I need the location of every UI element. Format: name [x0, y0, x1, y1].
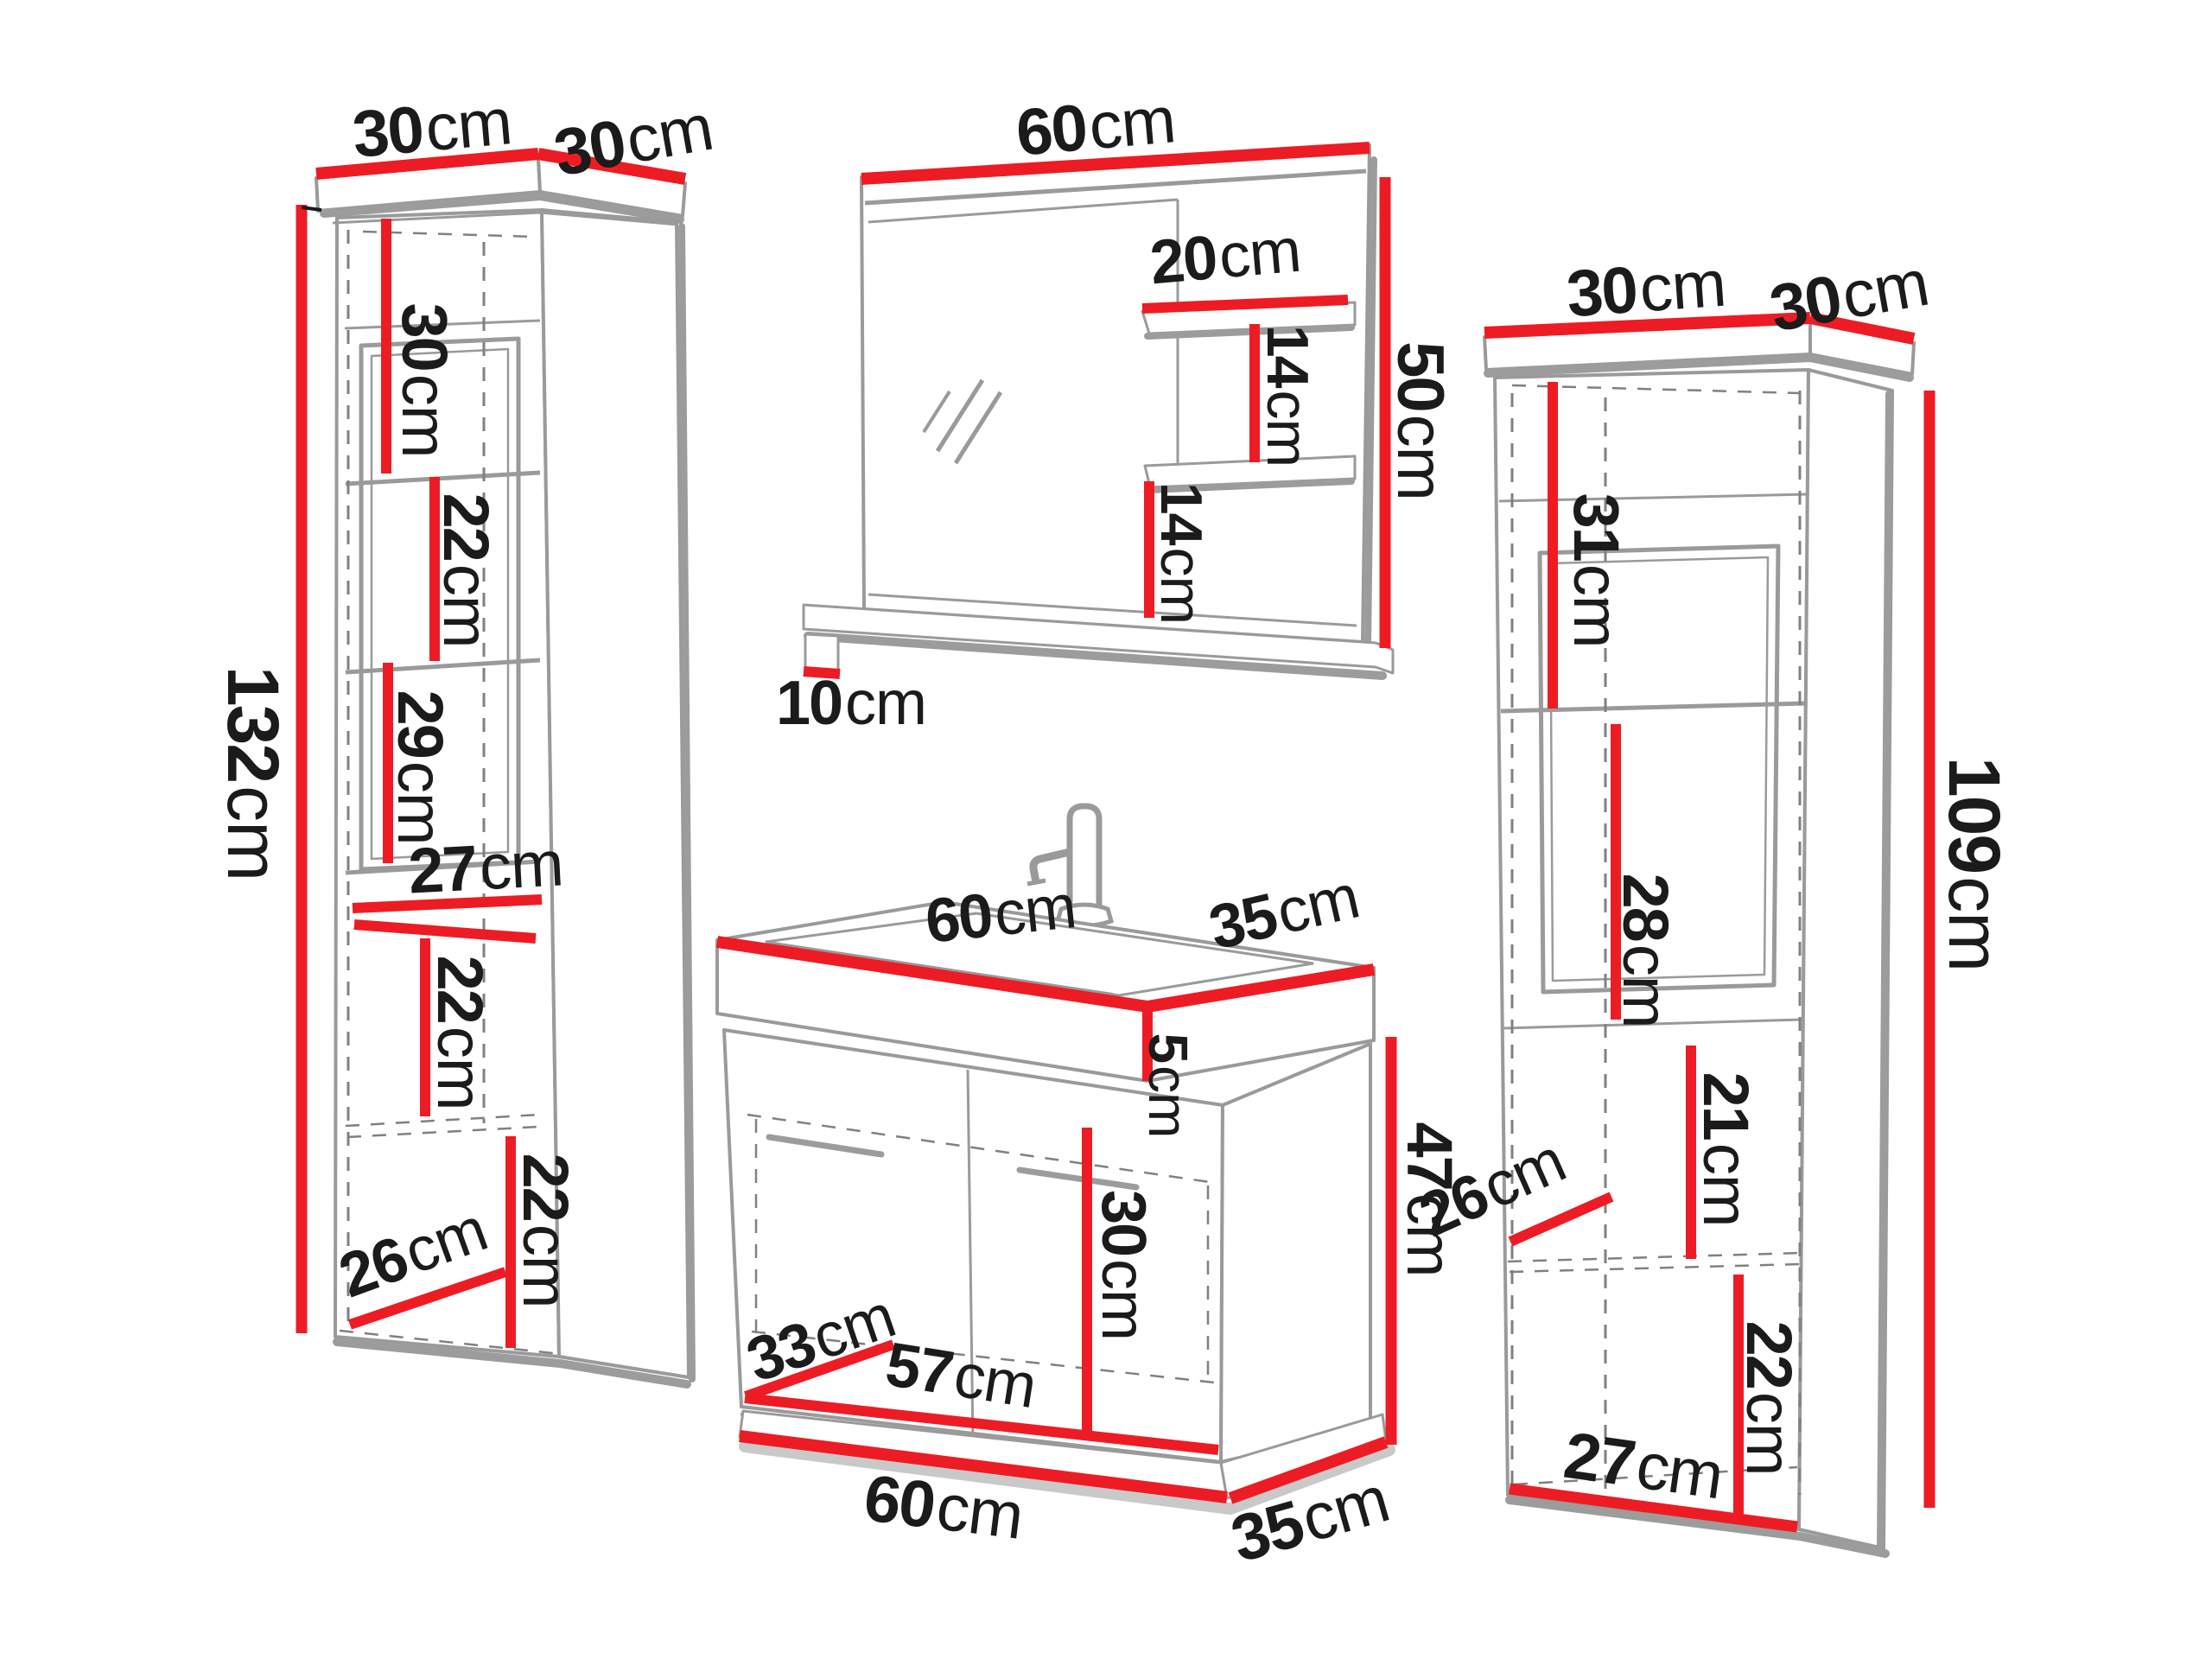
dim-label-left-shelf-b: 22cm [431, 493, 503, 648]
dim-label-mirror-gap-lower: 14cm [1148, 482, 1214, 624]
vanity-side-face [1221, 1044, 1370, 1462]
dim-label-mirror-gap-upper: 14cm [1255, 325, 1320, 467]
dim-label-left-shelf-a: 30cm [390, 303, 461, 458]
dim-label-right-top-width: 30cm [1564, 246, 1727, 331]
dim-label-mirror-shelf-width: 20cm [1147, 216, 1303, 298]
dim-label-vanity-top-depth: 35cm [1203, 861, 1365, 963]
dim-label-left-top-depth: 30cm [549, 90, 718, 190]
dim-label-left-shelf-c: 29cm [385, 690, 457, 845]
diagram-canvas: 30cm 30cm 132cm 30cm 22cm 29cm 27cm 22cm… [0, 0, 2212, 1659]
dim-label-left-height: 132cm [213, 666, 294, 880]
dim-label-right-shelf-c: 21cm [1691, 1072, 1763, 1227]
dim-label-right-height: 109cm [1934, 757, 2015, 971]
right-cabinet-drawing: 30cm 30cm 31cm 28cm 109cm 21cm 26cm 22cm… [1409, 245, 2015, 1554]
faucet-pipe [1070, 806, 1099, 907]
dim-label-left-top-width: 30cm [350, 85, 515, 172]
dim-label-mirror-height: 50cm [1384, 341, 1458, 500]
dim-label-right-shelf-d: 22cm [1734, 1321, 1806, 1476]
dim-label-left-shelf-e: 22cm [511, 1154, 582, 1308]
dim-label-mirror-width: 60cm [1014, 83, 1179, 170]
washbasin-cabinet-drawing: 60cm 35cm 5cm 30cm 33cm 57cm 47cm 60cm 3… [717, 806, 1466, 1576]
dim-label-right-shelf-b: 28cm [1611, 874, 1682, 1028]
dim-label-mirror-shelf-depth: 10cm [776, 669, 926, 738]
left-cabinet-drawing: 30cm 30cm 132cm 30cm 22cm 29cm 27cm 22cm… [213, 85, 718, 1384]
dim-label-door-height: 30cm [1089, 1190, 1158, 1340]
dim-label-basin-height: 5cm [1137, 1033, 1199, 1138]
mirror-drawing: 60cm 20cm 14cm 50cm 14cm 10cm [776, 83, 1458, 738]
furniture-dimensions-diagram: 30cm 30cm 132cm 30cm 22cm 29cm 27cm 22cm… [0, 0, 2212, 1659]
dim-label-left-shelf-d: 22cm [425, 956, 497, 1110]
dim-label-right-top-depth: 30cm [1764, 245, 1934, 346]
dim-label-right-shelf-a: 31cm [1561, 493, 1633, 648]
dim-label-left-inner-width: 27cm [406, 827, 564, 906]
